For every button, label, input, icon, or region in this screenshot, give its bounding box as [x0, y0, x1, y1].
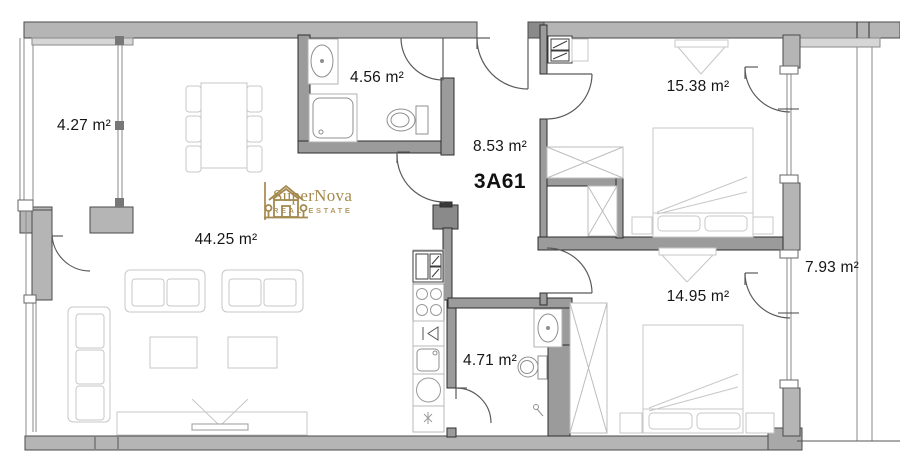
door-balcony-bedroom-bottom — [745, 273, 790, 318]
tv-wall-mount — [675, 40, 728, 74]
room-label-hallway: 8.53 m² — [473, 138, 527, 156]
walls-exterior — [20, 22, 900, 450]
toilet-icon — [518, 356, 547, 379]
bedroom-bottom-furniture — [620, 248, 774, 433]
wardrobe-bedroom-top — [547, 147, 623, 178]
door-entrance — [477, 38, 528, 89]
nightstand — [620, 413, 642, 433]
coffee-tables — [150, 337, 277, 368]
bathroom-top-fixtures — [308, 39, 428, 142]
bedroom-top-furniture — [548, 36, 773, 237]
room-label-balcony-left: 4.27 m² — [57, 117, 111, 135]
sofa-two-seat-left — [125, 270, 205, 312]
door-living-hallway — [397, 152, 444, 202]
fridge-icon — [413, 251, 443, 282]
nightstand — [746, 413, 774, 433]
kitchen-units — [413, 250, 444, 432]
logo-divider — [264, 182, 266, 220]
sofa-two-seat-right — [222, 270, 303, 312]
room-label-bedroom-top: 15.38 m² — [667, 78, 730, 96]
unit-code-label: 3A61 — [474, 170, 526, 194]
dining-set — [186, 83, 262, 172]
floor-plan: 4.27 m² 4.56 m² 8.53 m² 3A61 15.38 m² 44… — [0, 0, 900, 475]
door-balcony-left — [52, 233, 90, 271]
brand-logo: SuperNova REAL ESTATE — [264, 182, 352, 220]
sink-icon — [534, 309, 562, 347]
bed — [643, 325, 743, 433]
wardrobe-niche — [588, 186, 617, 236]
room-label-balcony-right: 7.93 m² — [805, 259, 859, 277]
sink-icon — [308, 39, 338, 84]
wardrobe-bedroom-bottom — [570, 303, 607, 433]
stove-icon — [413, 284, 444, 321]
toilet-icon — [387, 106, 428, 134]
nightstand — [632, 217, 652, 234]
nightstand — [753, 217, 773, 234]
door-bedroom-bottom — [547, 248, 592, 293]
door-bathroom-top — [401, 38, 443, 80]
shower-head-icon — [534, 405, 544, 417]
bed — [653, 128, 753, 237]
floor-plan-drawing — [0, 0, 900, 475]
house-icon — [264, 182, 308, 222]
tv-stand-living — [117, 399, 307, 435]
shoe-cabinet — [548, 36, 588, 63]
shower-icon — [309, 94, 357, 142]
door-bedroom-top — [547, 74, 592, 119]
room-label-bathroom-top: 4.56 m² — [350, 69, 404, 87]
tv-wall-mount — [659, 248, 716, 282]
door-bathroom-bottom — [456, 388, 491, 423]
room-label-living: 44.25 m² — [195, 231, 258, 249]
room-label-bathroom-bottom: 4.71 m² — [463, 352, 517, 370]
room-label-bedroom-bottom: 14.95 m² — [667, 288, 730, 306]
sofa-three-seat — [68, 307, 110, 422]
